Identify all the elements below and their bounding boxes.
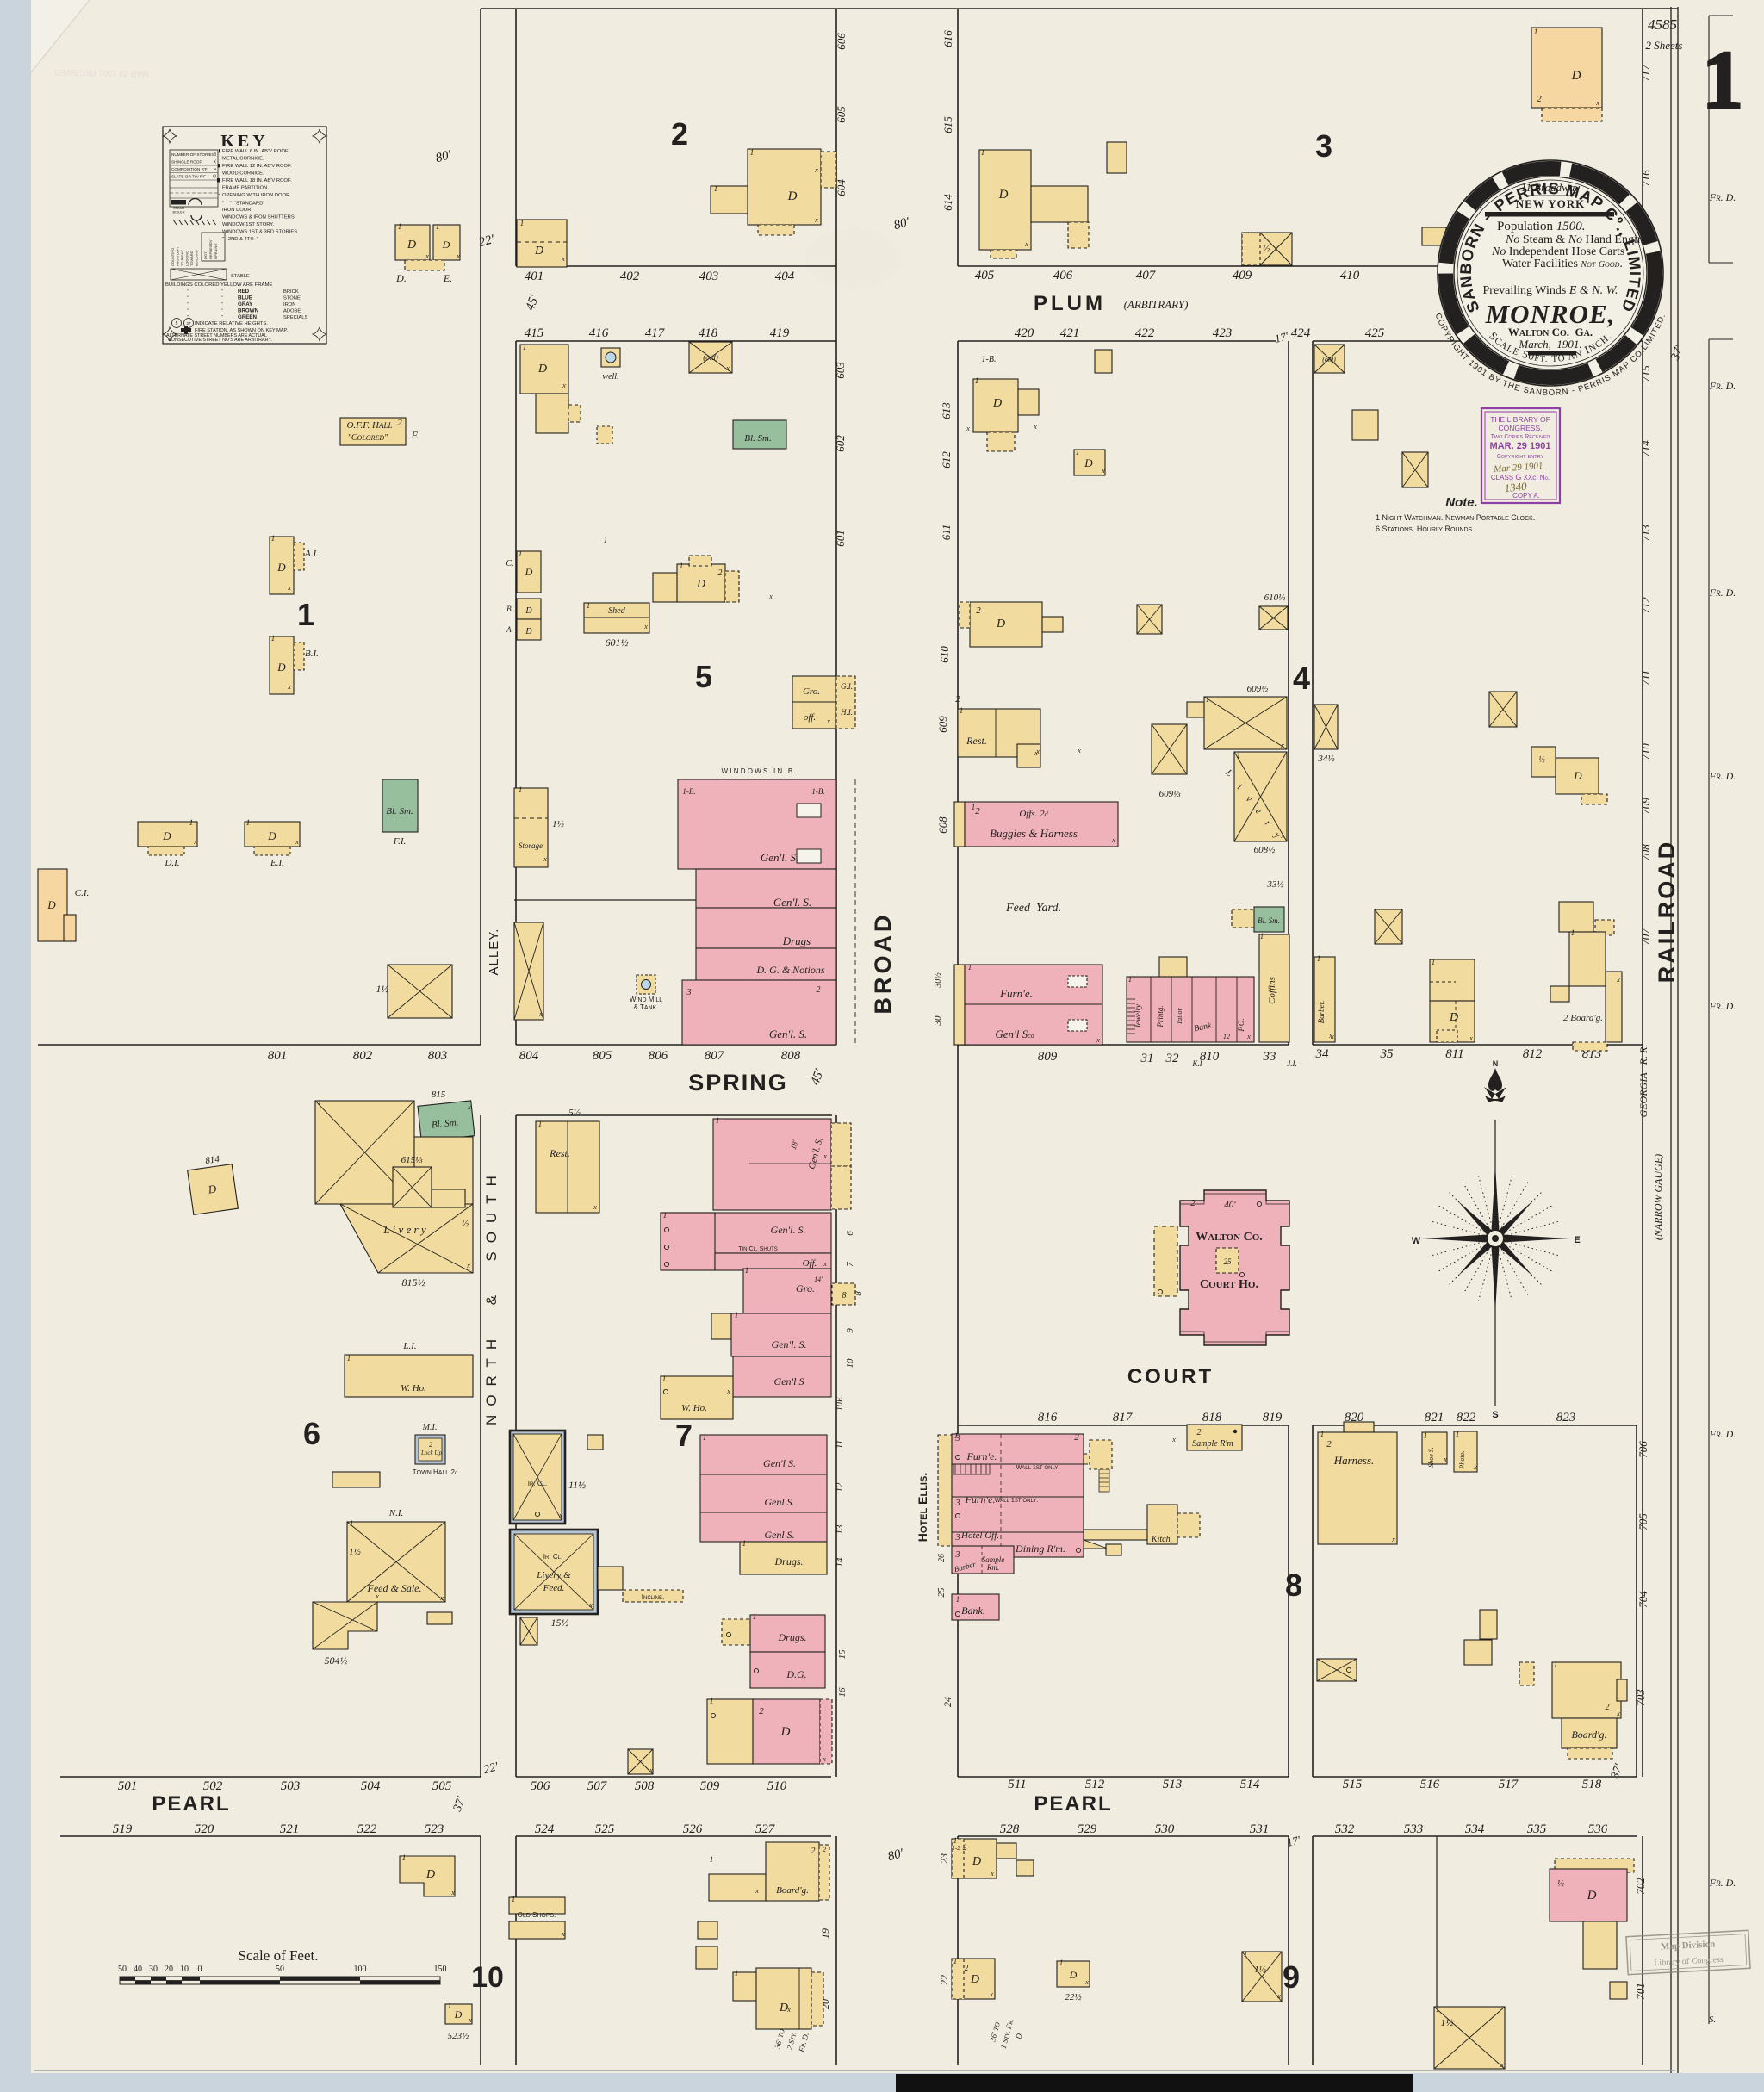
svg-text:BUILDINGS COLORED YELLOW ARE F: BUILDINGS COLORED YELLOW ARE FRAME (165, 282, 272, 288)
svg-text:1: 1 (587, 601, 591, 610)
svg-text:1: 1 (512, 1895, 516, 1903)
svg-text:": " (221, 302, 223, 307)
svg-text:50: 50 (118, 1965, 127, 1974)
svg-text:A.: A. (506, 625, 513, 634)
svg-text:2: 2 (1537, 94, 1542, 104)
svg-text:715: 715 (1639, 365, 1652, 382)
svg-text:" 2ND & 4TH ": " 2ND & 4TH " (222, 237, 258, 242)
svg-text:505: 505 (432, 1779, 452, 1793)
svg-text:x: x (1280, 832, 1284, 840)
svg-text:2: 2 (965, 1964, 969, 1972)
svg-text:Gen'l. S.: Gen'l. S. (769, 1027, 807, 1040)
svg-text:609: 609 (936, 716, 949, 733)
svg-text:501: 501 (118, 1779, 138, 1793)
svg-text:713: 713 (1639, 525, 1652, 542)
svg-text:Kitch.: Kitch. (1151, 1535, 1172, 1544)
svg-text:1: 1 (663, 1211, 668, 1220)
svg-text:D: D (972, 1855, 981, 1868)
svg-text:WALTON CO.: WALTON CO. (1196, 1231, 1263, 1244)
svg-text:Livery &: Livery & (536, 1570, 571, 1580)
svg-text:ADOBE: ADOBE (283, 309, 301, 314)
svg-text:524: 524 (535, 1822, 555, 1836)
svg-text:F.: F. (411, 429, 419, 441)
svg-text:2: 2 (429, 1441, 432, 1449)
svg-text:1: 1 (1554, 1661, 1558, 1669)
svg-text:Furn'e.: Furn'e. (966, 1450, 997, 1462)
svg-text:608: 608 (936, 816, 949, 834)
svg-text:818: 818 (1202, 1411, 1222, 1425)
svg-text:": " (187, 302, 189, 307)
svg-text:8: 8 (842, 1291, 847, 1301)
svg-text:2: 2 (397, 418, 402, 428)
svg-text:1: 1 (297, 597, 314, 632)
svg-text:535: 535 (1527, 1822, 1547, 1836)
svg-text:COPYRIGHT ENTRY: COPYRIGHT ENTRY (1497, 454, 1544, 460)
svg-text:814: 814 (205, 1154, 221, 1166)
svg-text:503: 503 (281, 1779, 301, 1793)
svg-text:WALL 1ST ONLY.: WALL 1ST ONLY. (995, 1498, 1039, 1504)
svg-text:MONROE,: MONROE, (1485, 299, 1616, 329)
svg-text:5½: 5½ (568, 1108, 581, 1118)
svg-text:x: x (966, 425, 970, 432)
svg-text:COURT: COURT (1127, 1365, 1214, 1388)
svg-text:OPENING WITH IRON DOOR.: OPENING WITH IRON DOOR. (222, 193, 291, 198)
svg-text:601: 601 (834, 530, 847, 547)
svg-text:Rest.: Rest. (549, 1147, 570, 1159)
svg-text:TWO COPIES RECEIVED: TWO COPIES RECEIVED (1491, 434, 1550, 440)
svg-text:14′: 14′ (814, 1276, 823, 1283)
svg-text:613: 613 (940, 402, 953, 419)
svg-text:1: 1 (750, 148, 755, 157)
svg-text:615: 615 (941, 116, 954, 133)
svg-text:x: x (1595, 99, 1599, 107)
svg-text:1-2: 1-2 (952, 1845, 960, 1852)
svg-text:1½: 1½ (552, 819, 564, 829)
svg-text:4585: 4585 (1648, 16, 1677, 33)
svg-text:O: O (213, 175, 216, 180)
svg-text:Drugs.: Drugs. (773, 1555, 803, 1567)
svg-text:610½: 610½ (1264, 593, 1286, 603)
svg-text:1: 1 (735, 1311, 739, 1319)
svg-text:Rm.: Rm. (986, 1563, 999, 1572)
svg-text:26: 26 (937, 1554, 947, 1562)
svg-text:x: x (543, 855, 547, 863)
svg-text:LOOKING: LOOKING (185, 251, 189, 266)
svg-text:": " (221, 296, 223, 301)
svg-text:803: 803 (428, 1049, 448, 1063)
svg-text:x: x (561, 255, 565, 263)
svg-text:Bl. Sm.: Bl. Sm. (1258, 916, 1280, 925)
svg-text:530: 530 (1155, 1822, 1175, 1836)
svg-text:(old): (old) (703, 353, 718, 362)
svg-text:BUILDING: BUILDING (195, 250, 199, 266)
svg-text:2: 2 (976, 605, 981, 616)
svg-text:Offs. 2d: Offs. 2d (1019, 809, 1048, 819)
svg-text:Bank.: Bank. (961, 1605, 985, 1617)
svg-text:x: x (726, 1387, 730, 1395)
svg-text:12: 12 (1223, 1033, 1230, 1040)
svg-text:Gen'l. S.: Gen'l. S. (773, 896, 811, 909)
svg-text:515: 515 (1343, 1778, 1363, 1791)
svg-text:FR. D.: FR. D. (1709, 1428, 1736, 1440)
svg-text:x: x (814, 166, 818, 174)
svg-text:416: 416 (589, 326, 609, 340)
svg-text:716: 716 (1639, 170, 1652, 187)
svg-text:1: 1 (972, 803, 976, 811)
svg-text:523: 523 (425, 1822, 444, 1836)
svg-text:FIRE WALL 12 IN. AB'V ROOF.: FIRE WALL 12 IN. AB'V ROOF. (222, 164, 292, 169)
svg-text:x: x (287, 584, 291, 592)
svg-text:2: 2 (823, 1846, 826, 1853)
svg-text:Furn'e.: Furn'e. (965, 1493, 996, 1505)
svg-text:1: 1 (735, 1969, 739, 1977)
svg-text:3: 3 (1315, 128, 1332, 164)
svg-text:532: 532 (1335, 1822, 1355, 1836)
svg-text:x: x (456, 252, 460, 260)
svg-text:19: 19 (819, 1928, 831, 1939)
svg-text:Off.: Off. (803, 1258, 817, 1269)
svg-text:D: D (276, 661, 286, 674)
svg-text:IRON: IRON (283, 302, 296, 307)
svg-text:16: 16 (837, 1687, 848, 1698)
svg-text:1: 1 (1128, 975, 1133, 984)
svg-text:M.I.: M.I. (422, 1423, 438, 1432)
svg-text:1: 1 (981, 148, 985, 157)
svg-text:2 Board'g.: 2 Board'g. (1563, 1013, 1603, 1023)
svg-text:E: E (1574, 1235, 1580, 1245)
svg-text:BRICK: BRICK (283, 289, 299, 295)
svg-text:Dining R'm.: Dining R'm. (1015, 1543, 1065, 1555)
svg-text:521: 521 (280, 1822, 300, 1836)
svg-text:1: 1 (1059, 1959, 1064, 1967)
svg-text:x: x (1500, 2061, 1504, 2069)
svg-text:1: 1 (742, 1539, 747, 1548)
svg-text:536: 536 (1588, 1822, 1608, 1836)
svg-text:712: 712 (1639, 597, 1652, 614)
svg-text:x: x (990, 1870, 994, 1878)
svg-text:612: 612 (940, 451, 953, 469)
svg-text:D: D (696, 578, 705, 591)
svg-text:1-B.: 1-B. (982, 355, 997, 364)
svg-text:1: 1 (318, 1098, 322, 1107)
svg-text:TOWARD: TOWARD (189, 251, 194, 266)
svg-text:1: 1 (953, 1957, 958, 1965)
svg-text:x: x (768, 593, 773, 600)
svg-text:Bl. Sm.: Bl. Sm. (386, 806, 413, 816)
svg-text:Board'g.: Board'g. (1571, 1729, 1606, 1741)
svg-text:8: 8 (1285, 1567, 1302, 1603)
svg-text:x: x (823, 1152, 827, 1160)
svg-text:STEAM: STEAM (173, 207, 184, 210)
svg-text:1-B.: 1-B. (811, 787, 824, 796)
svg-text:H.I.: H.I. (840, 708, 853, 717)
svg-text:2: 2 (671, 116, 688, 152)
svg-text:x: x (826, 717, 830, 725)
svg-text:708: 708 (1639, 844, 1652, 861)
svg-text:WINDOW-1ST STORY.: WINDOW-1ST STORY. (222, 222, 274, 227)
svg-text:809: 809 (1038, 1050, 1058, 1064)
svg-text:815½: 815½ (402, 1276, 425, 1288)
svg-text:702: 702 (1634, 1878, 1647, 1895)
svg-text:31: 31 (1140, 1052, 1154, 1065)
svg-text:10E: 10E (835, 1397, 845, 1411)
svg-text:Photo.: Photo. (1458, 1450, 1466, 1469)
svg-text:IRON DOOR: IRON DOOR (222, 208, 252, 213)
svg-text:1: 1 (1436, 2005, 1440, 2014)
svg-text:C.I.: C.I. (75, 888, 90, 898)
svg-text:well.: well. (602, 372, 618, 382)
svg-text:15: 15 (837, 1649, 848, 1660)
svg-text:FIRE WALL 18 IN. AB'V ROOF.: FIRE WALL 18 IN. AB'V ROOF. (222, 178, 292, 183)
svg-text:x: x (466, 1262, 470, 1269)
svg-text:FROM LEFT: FROM LEFT (176, 246, 180, 266)
svg-text:705: 705 (1637, 1513, 1649, 1530)
svg-text:10: 10 (180, 1965, 189, 1974)
svg-text:D: D (1571, 69, 1581, 83)
svg-text:403: 403 (699, 270, 719, 283)
svg-text:GEORGIA R. R.: GEORGIA R. R. (1637, 1045, 1649, 1118)
svg-text:No Steam & No Hand Engines: No Steam & No Hand Engines (1505, 233, 1654, 246)
svg-text:x: x (1391, 1536, 1395, 1543)
svg-text:1: 1 (1456, 1430, 1460, 1438)
svg-text:x: x (1171, 1436, 1176, 1443)
svg-text:D: D (162, 829, 171, 842)
svg-text:1: 1 (436, 222, 440, 231)
svg-text:x: x (468, 2016, 472, 2024)
svg-text:2: 2 (811, 1847, 816, 1856)
svg-text:PEARL: PEARL (1034, 1792, 1112, 1816)
svg-text:3: 3 (214, 152, 216, 158)
svg-text:Furn'e.: Furn'e. (999, 987, 1033, 1000)
svg-text:23: 23 (938, 1853, 950, 1864)
svg-text:BOILER: BOILER (173, 211, 185, 214)
svg-text:N: N (1493, 1059, 1499, 1068)
svg-text:W: W (1412, 1236, 1421, 1246)
svg-text:519: 519 (113, 1822, 133, 1836)
svg-text:": " (221, 315, 223, 320)
svg-text:1: 1 (398, 222, 402, 231)
svg-text:2: 2 (759, 1706, 764, 1716)
svg-text:20: 20 (165, 1965, 173, 1974)
svg-text:Gen'l. S.: Gen'l. S. (772, 1338, 807, 1350)
svg-text:SLATE OR TIN R'F: SLATE OR TIN R'F (171, 175, 206, 179)
svg-text:THE LIBRARY OF: THE LIBRARY OF (1490, 415, 1550, 424)
svg-text:SPECIALS: SPECIALS (283, 315, 307, 320)
svg-text:30: 30 (933, 1015, 943, 1027)
svg-text:11 Broadway: 11 Broadway (1521, 181, 1580, 194)
svg-text:11½: 11½ (568, 1479, 586, 1491)
svg-text:S.: S. (1709, 2014, 1716, 2025)
svg-text:1: 1 (968, 963, 972, 972)
svg-text:1: 1 (710, 1697, 714, 1705)
svg-text:x: x (375, 1592, 379, 1600)
svg-text:616: 616 (941, 30, 954, 47)
svg-text:FR. D.: FR. D. (1709, 587, 1736, 599)
svg-text:COURT HO.: COURT HO. (1200, 1278, 1258, 1291)
svg-text:x: x (1616, 1710, 1620, 1717)
svg-text:1-B.: 1-B. (682, 787, 695, 796)
svg-text:NEW YORK: NEW YORK (1516, 197, 1586, 210)
svg-text:FR. D.: FR. D. (1709, 380, 1736, 392)
svg-text:6: 6 (845, 1231, 855, 1236)
svg-text:Prevailing Winds E & N. W.: Prevailing Winds E & N. W. (1483, 284, 1618, 297)
svg-text:602: 602 (834, 435, 847, 452)
svg-text:810: 810 (1200, 1050, 1220, 1064)
svg-text:806: 806 (649, 1049, 668, 1063)
svg-text:1: 1 (538, 1120, 543, 1128)
svg-text:1: 1 (1424, 1431, 1428, 1440)
svg-text:415: 415 (525, 326, 544, 340)
svg-text:D: D (996, 618, 1005, 630)
svg-text:BROAD: BROAD (870, 912, 896, 1015)
svg-text:Genl S.: Genl S. (764, 1496, 794, 1508)
svg-text:35: 35 (1380, 1047, 1394, 1061)
svg-text:BROWN: BROWN (238, 308, 259, 314)
svg-text:40: 40 (134, 1965, 142, 1974)
svg-text:1: 1 (1237, 751, 1241, 760)
svg-text:516: 516 (1420, 1778, 1440, 1791)
svg-text:1: 1 (1317, 954, 1321, 963)
svg-text:x: x (1246, 1033, 1251, 1040)
svg-text:NORTH & SOUTH: NORTH & SOUTH (483, 1167, 500, 1425)
svg-text:1: 1 (519, 549, 523, 558)
svg-text:x: x (450, 1889, 455, 1896)
svg-text:Gen'l. S.: Gen'l. S. (761, 851, 798, 864)
svg-text:1: 1 (271, 634, 276, 642)
svg-text:Storage: Storage (519, 841, 543, 850)
svg-text:Coffins: Coffins (1267, 977, 1277, 1004)
svg-text:"COLORED": "COLORED" (348, 433, 388, 443)
svg-text:423: 423 (1213, 326, 1233, 340)
svg-text:1: 1 (402, 1853, 407, 1862)
svg-text:S: S (1492, 1410, 1498, 1420)
svg-text:x: x (1077, 747, 1081, 754)
svg-text:25: 25 (936, 1587, 947, 1598)
svg-text:x: x (649, 1766, 653, 1774)
svg-text:507: 507 (587, 1779, 608, 1793)
svg-text:1: 1 (271, 534, 276, 543)
svg-text:FIRE WALL 6 IN. AB'V ROOF.: FIRE WALL 6 IN. AB'V ROOF. (222, 149, 289, 154)
svg-text:817: 817 (1113, 1411, 1134, 1425)
svg-text:x: x (1024, 240, 1028, 248)
svg-text:805: 805 (593, 1049, 612, 1063)
svg-text:50: 50 (276, 1965, 284, 1974)
svg-text:(old): (old) (1322, 356, 1336, 363)
svg-text:802: 802 (353, 1049, 373, 1063)
svg-text:409: 409 (1233, 269, 1252, 282)
svg-text:424: 424 (1291, 326, 1311, 340)
svg-text:522: 522 (357, 1822, 377, 1836)
svg-text:1: 1 (246, 818, 251, 827)
svg-text:801: 801 (268, 1049, 288, 1063)
svg-text:710: 710 (1639, 743, 1652, 760)
svg-text:823: 823 (1556, 1411, 1576, 1425)
svg-text:1: 1 (662, 1375, 667, 1383)
svg-text:D: D (1587, 1889, 1597, 1903)
svg-text:Note.: Note. (1445, 495, 1478, 510)
svg-text:x: x (1111, 836, 1115, 844)
svg-text:WALL 1ST ONLY.: WALL 1ST ONLY. (1016, 1465, 1060, 1471)
svg-text:606: 606 (835, 33, 848, 50)
svg-text:Shoe S.: Shoe S. (1427, 1447, 1435, 1468)
svg-text:614: 614 (941, 194, 954, 211)
svg-text:D: D (534, 245, 543, 258)
svg-text:30½: 30½ (934, 972, 943, 989)
svg-text:1: 1 (1206, 695, 1210, 704)
svg-text:611: 611 (940, 525, 953, 541)
svg-text:Bl. Sm.: Bl. Sm. (744, 433, 771, 444)
svg-text:1: 1 (448, 2002, 452, 2010)
svg-text:2: 2 (817, 985, 821, 995)
svg-text:x: x (1096, 1036, 1100, 1044)
svg-text:1: 1 (350, 1519, 354, 1528)
svg-text:1: 1 (1571, 928, 1575, 937)
svg-text:x: x (1469, 1034, 1473, 1042)
svg-text:Feed Yard.: Feed Yard. (1005, 902, 1061, 915)
svg-text:x: x (1034, 749, 1038, 757)
svg-text:FR. D.: FR. D. (1709, 1877, 1736, 1889)
svg-text:L.I.: L.I. (402, 1341, 416, 1351)
svg-text:2: 2 (1190, 1198, 1196, 1208)
svg-text:10: 10 (471, 1961, 504, 1994)
svg-text:1: 1 (956, 1595, 960, 1604)
svg-text:W. Ho.: W. Ho. (401, 1383, 426, 1394)
svg-text:x: x (1280, 742, 1284, 749)
svg-text:425: 425 (1365, 326, 1385, 340)
svg-text:x: x (725, 364, 730, 372)
svg-text:x: x (593, 1203, 597, 1211)
svg-text:5: 5 (176, 321, 178, 326)
svg-text:MAR 29 1901 RECEIVED: MAR 29 1901 RECEIVED (54, 67, 149, 78)
svg-text:422: 422 (1135, 326, 1155, 340)
svg-text:Rest.: Rest. (966, 735, 987, 747)
svg-text:x: x (1473, 1463, 1477, 1471)
svg-text:0: 0 (198, 1965, 202, 1974)
svg-text:D: D (525, 606, 532, 616)
svg-text:33½: 33½ (1266, 879, 1283, 890)
svg-text:D: D (537, 363, 547, 376)
svg-text:4: 4 (1293, 661, 1310, 696)
svg-text:x: x (439, 1594, 444, 1602)
svg-text:32: 32 (1165, 1052, 1180, 1065)
svg-text:CONSECUTIVE STREET NO'S ARE AR: CONSECUTIVE STREET NO'S ARE ARBITRARY. (168, 338, 272, 343)
svg-text:x: x (287, 683, 291, 691)
svg-text:1: 1 (975, 376, 979, 385)
svg-text:811: 811 (1445, 1047, 1463, 1061)
svg-text:402: 402 (620, 270, 640, 283)
svg-text:PLUM: PLUM (1034, 292, 1106, 315)
svg-text:609½: 609½ (1247, 684, 1269, 694)
svg-text:Lock Up: Lock Up (420, 1450, 442, 1456)
svg-text:6: 6 (303, 1416, 320, 1451)
svg-text:517: 517 (1499, 1778, 1519, 1791)
svg-text:528: 528 (1000, 1822, 1020, 1836)
svg-text:1½: 1½ (1441, 2016, 1454, 2028)
svg-text:D: D (1449, 1011, 1458, 1024)
svg-text:G.I.: G.I. (841, 682, 853, 691)
svg-text:K.I: K.I (1191, 1059, 1202, 1068)
svg-text:2: 2 (975, 806, 980, 816)
svg-text:D: D (1069, 1969, 1078, 1981)
svg-text:x: x (822, 1755, 826, 1763)
svg-text:Genl S.: Genl S. (764, 1529, 794, 1541)
svg-text:603: 603 (834, 362, 847, 379)
svg-text:Gen'l. S.: Gen'l. S. (771, 1224, 806, 1236)
svg-text:808: 808 (781, 1049, 801, 1063)
svg-text:D: D (267, 829, 276, 842)
svg-text:MAR. 29 1901: MAR. 29 1901 (1490, 441, 1551, 451)
svg-text:x: x (786, 2006, 791, 2014)
